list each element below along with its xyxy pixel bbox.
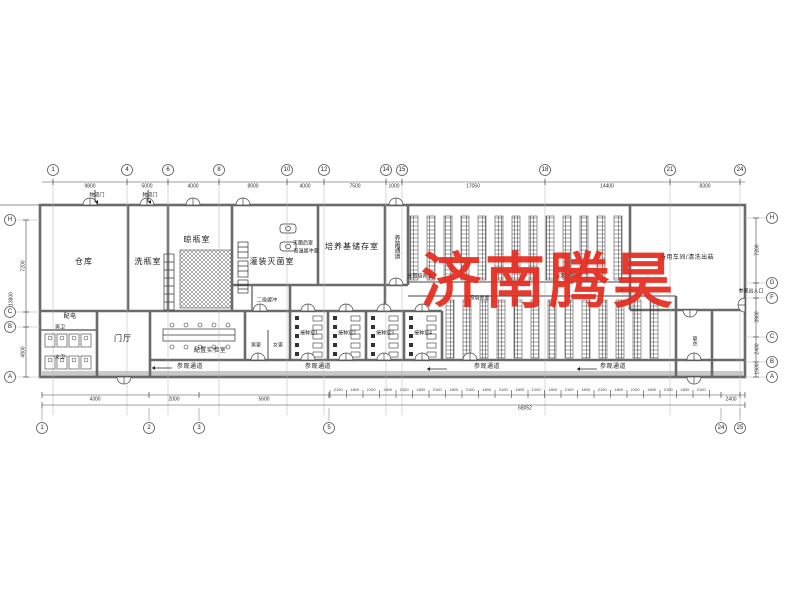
room-label-male-toilet: 男卫	[55, 326, 65, 331]
axis-bubble-label: 24	[737, 167, 744, 173]
label-visitor-corridor-1: 参观通道	[177, 364, 203, 370]
dim-top: 1000	[388, 185, 399, 190]
room-label-medium-storage: 培养基储存室	[325, 243, 379, 251]
label-visitor-corridor-2: 参观通道	[305, 364, 331, 370]
dim-right: 7200	[756, 244, 761, 255]
axis-bubble-label: B	[770, 359, 774, 365]
dim-bottom-run: 1800	[581, 388, 590, 392]
dim-bottom-run: 2100	[664, 388, 673, 392]
axis-bubble-label: 1	[51, 167, 54, 173]
axis-bubble-label: C	[8, 309, 12, 315]
room-label-post-steril: 灭菌后室	[293, 242, 313, 247]
axis-bubble-label: 4	[125, 167, 128, 173]
axis-bubble-label: 12	[321, 167, 328, 173]
dim-bottom-run: 1800	[449, 388, 458, 392]
label-visitor-entrance: 参观出入口	[738, 290, 763, 295]
watermark-text: 济南腾昊	[421, 252, 677, 312]
room-label-male-change: 男更	[251, 344, 261, 349]
room-label-bottle-airing: 晾瓶室	[184, 236, 211, 244]
dim-bottom-total: 68052	[518, 407, 532, 412]
axis-bubble-label: 2	[147, 425, 150, 431]
dim-bottom: 2000	[168, 398, 179, 403]
dim-bottom-run: 2100	[400, 388, 409, 392]
axis-bubble-label: 10	[284, 167, 291, 173]
dim-bottom: 2400	[725, 398, 736, 403]
dim-bottom-run: 1800	[383, 388, 392, 392]
dim-bottom-run: 2100	[697, 388, 706, 392]
axis-bubble-label: 24	[718, 425, 725, 431]
dim-bottom-run: 1800	[416, 388, 425, 392]
axis-bubble-label: H	[770, 215, 774, 221]
axis-bubble-label: F	[770, 295, 774, 301]
axis-bubble-label: A	[8, 374, 12, 380]
dim-left: 13800	[10, 292, 15, 306]
axis-bubble-label: 6	[166, 167, 169, 173]
dim-bottom-run: 2100	[367, 388, 376, 392]
room-label-inoculation2: 接种室2	[338, 332, 356, 337]
axis-bubble-label: C	[770, 334, 774, 340]
axis-bubble-label: 3	[197, 425, 200, 431]
dim-bottom-run: 1800	[515, 388, 524, 392]
axis-bubble-label: 14	[383, 167, 390, 173]
dim-left: 4800	[22, 346, 27, 357]
dim-top: 17050	[466, 185, 480, 190]
room-label-change-room: 更衣	[692, 336, 697, 346]
label-logistics-door-1: 物流门	[89, 194, 104, 199]
dim-bottom-run: 1800	[680, 388, 689, 392]
dim-bottom-run: 2100	[433, 388, 442, 392]
dim-top: 9800	[84, 185, 95, 190]
dim-bottom-run: 1800	[548, 388, 557, 392]
dim-top: 5000	[141, 185, 152, 190]
room-label-inoculation1: 接种室1	[300, 332, 318, 337]
dim-bottom-run: 1800	[614, 388, 623, 392]
dim-top: 14400	[600, 185, 614, 190]
room-label-power: 配电	[63, 314, 76, 320]
dim-bottom-run: 2100	[565, 388, 574, 392]
dim-bottom: 5600	[258, 398, 269, 403]
label-visitor-corridor-3: 参观通道	[474, 364, 500, 370]
dim-bottom-run: 2100	[532, 388, 541, 392]
dim-top: 4000	[187, 185, 198, 190]
room-label-female-change: 女更	[273, 344, 283, 349]
dim-right: 2400	[756, 343, 761, 354]
room-label-buffer2: 二级缓冲	[257, 299, 277, 304]
dim-top: 8000	[247, 185, 258, 190]
room-label-inoculation4: 接种室4	[414, 332, 432, 337]
dim-bottom: 4300	[89, 398, 100, 403]
dim-top: 8300	[699, 185, 710, 190]
dim-bottom-run: 2100	[598, 388, 607, 392]
dim-top: 4000	[299, 185, 310, 190]
label-logistics-door-2: 物流门	[142, 194, 157, 199]
room-label-warehouse: 仓库	[75, 258, 93, 266]
room-label-lobby: 门厅	[114, 335, 132, 343]
room-label-female-toilet: 女卫	[55, 356, 65, 361]
dim-right: 1500	[756, 363, 761, 374]
dim-top: 7500	[349, 185, 360, 190]
room-label-inoculation3: 接种室3	[376, 332, 394, 337]
axis-bubble-label: 5	[327, 425, 330, 431]
room-label-prep-lab: 配置实验室	[194, 348, 227, 354]
dim-bottom-run: 1800	[647, 388, 656, 392]
axis-bubble-label: 21	[667, 167, 674, 173]
dim-bottom-run: 1800	[350, 388, 359, 392]
dim-bottom-run: 2100	[466, 388, 475, 392]
dim-bottom-run: 2100	[631, 388, 640, 392]
axis-bubble-label: 1	[40, 425, 43, 431]
dim-right: 3900	[756, 311, 761, 322]
axis-bubble-label: H	[8, 217, 12, 223]
axis-bubble-label: B	[8, 324, 12, 330]
dim-bottom-run: 1800	[482, 388, 491, 392]
room-label-bottle-washing: 洗瓶室	[135, 258, 162, 266]
axis-bubble-label: 8	[217, 167, 220, 173]
dim-left: 7200	[22, 260, 27, 271]
axis-bubble-label: 15	[399, 167, 406, 173]
room-label-filling-steril: 灌装灭菌室	[250, 258, 295, 266]
label-layer: 仓库 洗瓶室 晾瓶室 灌装灭菌室 培养基储存室 养菌通道 备用车间/清洗出菇 配…	[0, 0, 800, 600]
room-label-culture-corridor: 养菌通道	[393, 235, 399, 259]
axis-bubble-label: A	[770, 374, 774, 380]
axis-bubble-label: G	[770, 280, 775, 286]
label-visitor-corridor-4: 参观通道	[600, 364, 626, 370]
axis-bubble-label: 25	[737, 425, 744, 431]
room-label-hightemp-buffer: 高温缓冲室	[293, 250, 318, 255]
cad-floorplan-sheet: 仓库 洗瓶室 晾瓶室 灌装灭菌室 培养基储存室 养菌通道 备用车间/清洗出菇 配…	[0, 0, 800, 600]
axis-bubble-label: 18	[542, 167, 549, 173]
dim-bottom-run: 2100	[334, 388, 343, 392]
dim-bottom-run: 2100	[499, 388, 508, 392]
